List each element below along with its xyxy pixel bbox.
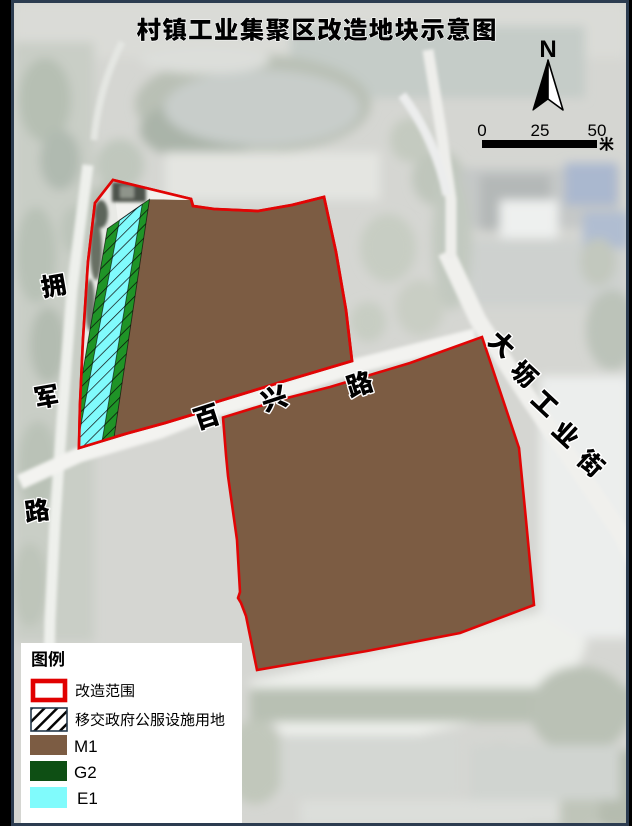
svg-text:50: 50: [588, 121, 607, 140]
svg-text:E1: E1: [77, 789, 98, 808]
svg-text:0: 0: [477, 121, 486, 140]
svg-text:G2: G2: [74, 763, 97, 782]
svg-text:N: N: [539, 36, 556, 63]
svg-text:M1: M1: [74, 737, 98, 756]
svg-text:25: 25: [531, 121, 550, 140]
